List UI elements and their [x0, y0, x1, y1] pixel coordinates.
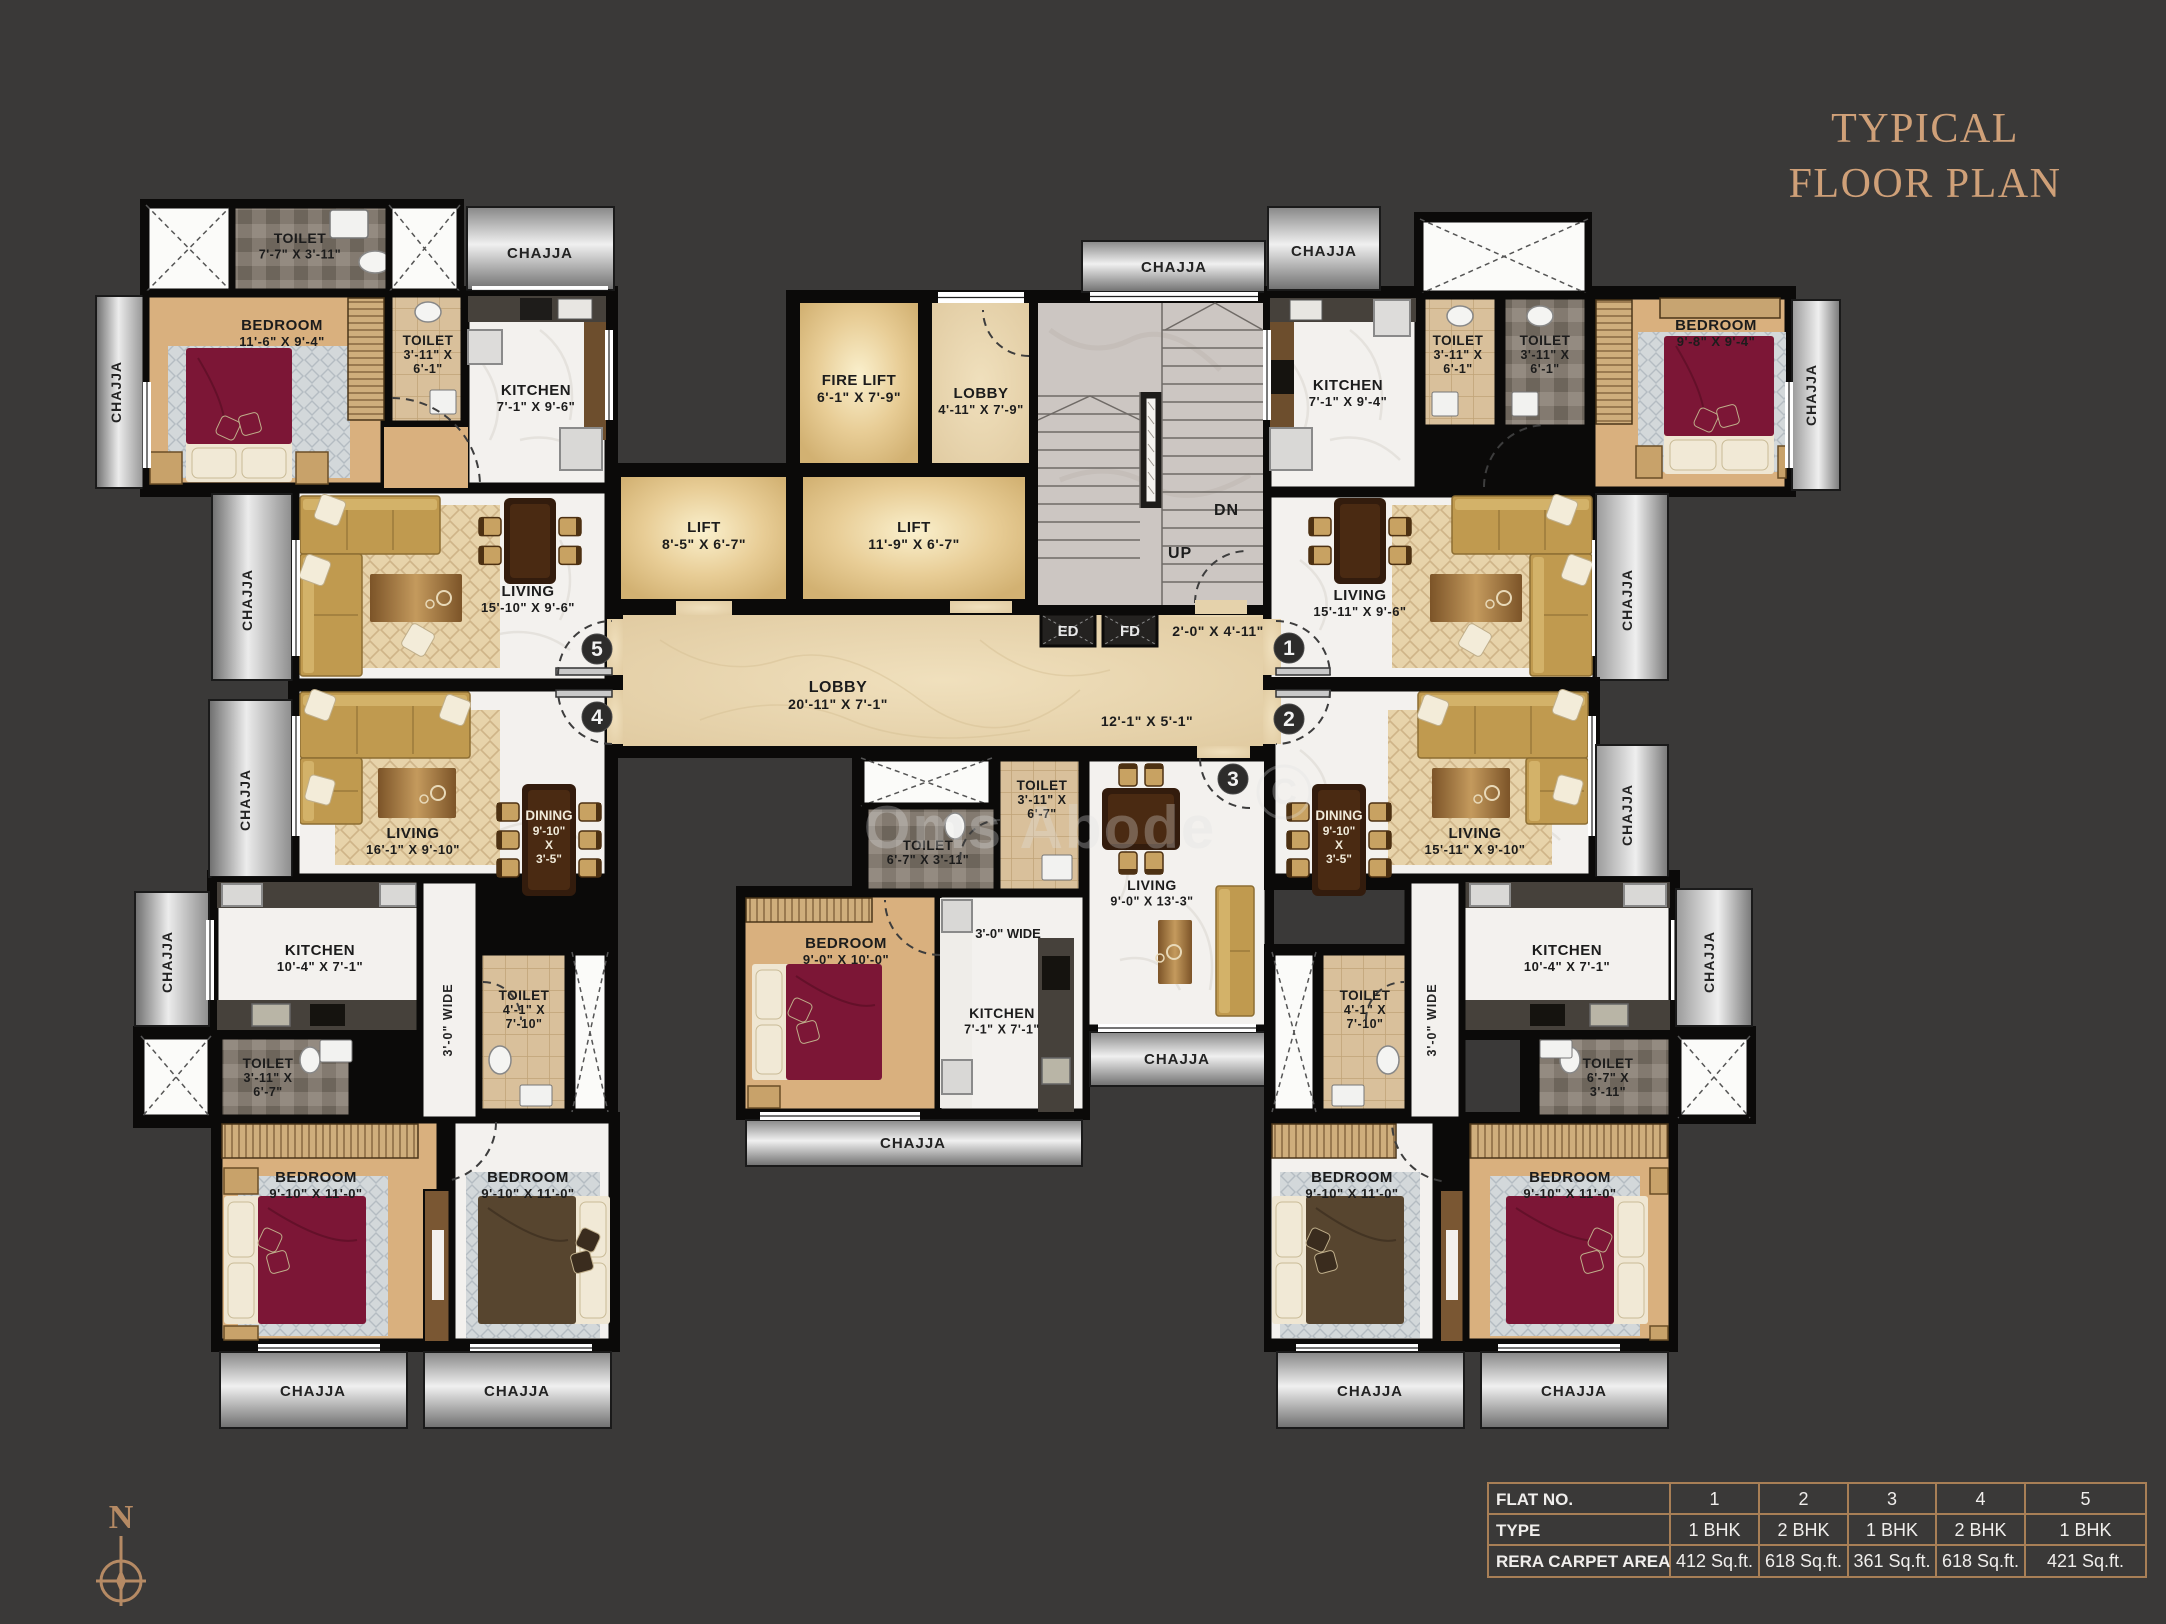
svg-text:LIVING: LIVING — [386, 825, 439, 842]
svg-text:2: 2 — [1283, 708, 1295, 731]
svg-text:4'-11" X 7'-9": 4'-11" X 7'-9" — [938, 402, 1024, 417]
svg-text:9'-0" X 13'-3": 9'-0" X 13'-3" — [1110, 895, 1193, 909]
svg-text:KITCHEN: KITCHEN — [969, 1005, 1035, 1021]
svg-text:1 BHK: 1 BHK — [2059, 1520, 2111, 1540]
svg-text:4'-1" X: 4'-1" X — [1344, 1003, 1386, 1017]
svg-text:15'-11" X 9'-6": 15'-11" X 9'-6" — [1313, 604, 1406, 619]
svg-text:X: X — [545, 838, 553, 852]
svg-text:TOILET: TOILET — [499, 988, 550, 1003]
svg-text:9'-10" X 11'-0": 9'-10" X 11'-0" — [1305, 1186, 1398, 1201]
svg-text:12'-1" X 5'-1": 12'-1" X 5'-1" — [1101, 713, 1193, 729]
svg-text:UP: UP — [1168, 545, 1192, 562]
svg-text:10'-4" X 7'-1": 10'-4" X 7'-1" — [277, 959, 363, 974]
svg-text:TOILET: TOILET — [1017, 778, 1068, 793]
svg-text:CHAJJA: CHAJJA — [237, 769, 253, 831]
svg-text:3'-0" WIDE: 3'-0" WIDE — [441, 983, 455, 1056]
svg-text:3'-11": 3'-11" — [1590, 1085, 1626, 1099]
svg-text:9'-10": 9'-10" — [533, 824, 566, 838]
svg-text:CHAJJA: CHAJJA — [1291, 243, 1357, 260]
svg-text:2'-0" X 4'-11": 2'-0" X 4'-11" — [1172, 623, 1264, 639]
svg-text:TYPICAL: TYPICAL — [1831, 106, 2019, 152]
svg-text:4'-1" X: 4'-1" X — [503, 1003, 545, 1017]
svg-text:KITCHEN: KITCHEN — [285, 942, 355, 959]
svg-text:TOILET: TOILET — [274, 230, 327, 246]
svg-text:3'-11" X: 3'-11" X — [1520, 348, 1569, 362]
svg-text:1 BHK: 1 BHK — [1866, 1520, 1918, 1540]
svg-text:FLAT NO.: FLAT NO. — [1496, 1490, 1573, 1509]
svg-text:1 BHK: 1 BHK — [1688, 1520, 1740, 1540]
svg-text:BEDROOM: BEDROOM — [1529, 1169, 1611, 1186]
svg-text:CHAJJA: CHAJJA — [1619, 784, 1635, 846]
svg-text:CHAJJA: CHAJJA — [1141, 259, 1207, 276]
svg-text:CHAJJA: CHAJJA — [1337, 1383, 1403, 1400]
svg-text:CHAJJA: CHAJJA — [1803, 364, 1819, 426]
svg-text:TYPE: TYPE — [1496, 1521, 1540, 1540]
svg-text:2 BHK: 2 BHK — [1954, 1520, 2006, 1540]
svg-text:20'-11" X 7'-1": 20'-11" X 7'-1" — [788, 696, 888, 712]
svg-text:7'-1" X 9'-6": 7'-1" X 9'-6" — [497, 399, 575, 414]
svg-text:CHAJJA: CHAJJA — [1619, 569, 1635, 631]
svg-text:618 Sq.ft.: 618 Sq.ft. — [1765, 1551, 1842, 1571]
svg-text:2 BHK: 2 BHK — [1777, 1520, 1829, 1540]
svg-text:CHAJJA: CHAJJA — [1701, 931, 1717, 993]
svg-text:LIVING: LIVING — [1448, 825, 1501, 842]
svg-text:BEDROOM: BEDROOM — [487, 1169, 569, 1186]
svg-text:LIFT: LIFT — [687, 519, 721, 536]
svg-text:412 Sq.ft.: 412 Sq.ft. — [1676, 1551, 1753, 1571]
svg-text:2: 2 — [1798, 1489, 1808, 1509]
svg-text:N: N — [109, 1499, 134, 1536]
svg-text:X: X — [1335, 838, 1343, 852]
svg-text:CHAJJA: CHAJJA — [108, 361, 124, 423]
svg-text:9'-8" X 9'-4": 9'-8" X 9'-4" — [1677, 334, 1755, 349]
svg-text:TOILET: TOILET — [1583, 1056, 1634, 1071]
svg-text:5: 5 — [591, 638, 603, 661]
svg-text:7'-7" X 3'-11": 7'-7" X 3'-11" — [259, 248, 341, 262]
svg-text:BEDROOM: BEDROOM — [275, 1169, 357, 1186]
svg-text:3: 3 — [1887, 1489, 1897, 1509]
svg-text:LOBBY: LOBBY — [954, 385, 1009, 402]
svg-text:7'-1" X 9'-4": 7'-1" X 9'-4" — [1309, 394, 1387, 409]
svg-text:7'-10": 7'-10" — [506, 1017, 543, 1031]
svg-text:BEDROOM: BEDROOM — [805, 935, 887, 952]
svg-text:TOILET: TOILET — [1340, 988, 1391, 1003]
svg-text:ED: ED — [1058, 623, 1079, 640]
svg-text:KITCHEN: KITCHEN — [1313, 377, 1383, 394]
svg-text:FLOOR PLAN: FLOOR PLAN — [1789, 161, 2062, 207]
svg-text:3'-0" WIDE: 3'-0" WIDE — [1425, 983, 1439, 1056]
svg-text:361 Sq.ft.: 361 Sq.ft. — [1853, 1551, 1930, 1571]
svg-text:C: C — [1271, 771, 1297, 812]
svg-text:CHAJJA: CHAJJA — [507, 245, 573, 262]
svg-text:FD: FD — [1120, 623, 1140, 640]
svg-text:RERA CARPET AREA: RERA CARPET AREA — [1496, 1552, 1670, 1571]
svg-text:1: 1 — [1283, 637, 1295, 660]
svg-text:16'-1" X 9'-10": 16'-1" X 9'-10" — [366, 842, 460, 857]
svg-text:5: 5 — [2080, 1489, 2090, 1509]
svg-text:KITCHEN: KITCHEN — [501, 382, 571, 399]
svg-text:10'-4" X 7'-1": 10'-4" X 7'-1" — [1524, 959, 1610, 974]
svg-text:6'-1": 6'-1" — [1443, 362, 1472, 376]
svg-text:4: 4 — [1975, 1489, 1985, 1509]
svg-text:LIFT: LIFT — [897, 519, 931, 536]
svg-text:LOBBY: LOBBY — [809, 679, 868, 696]
svg-text:FIRE LIFT: FIRE LIFT — [822, 372, 897, 389]
svg-text:9'-10" X 11'-0": 9'-10" X 11'-0" — [1523, 1186, 1616, 1201]
svg-text:DN: DN — [1214, 502, 1239, 519]
svg-text:BEDROOM: BEDROOM — [241, 317, 323, 334]
svg-text:9'-10" X 11'-0": 9'-10" X 11'-0" — [481, 1186, 574, 1201]
svg-text:9'-10": 9'-10" — [1323, 824, 1356, 838]
svg-text:11'-6" X 9'-4": 11'-6" X 9'-4" — [239, 334, 325, 349]
svg-text:3'-11" X: 3'-11" X — [403, 348, 452, 362]
svg-text:3'-5": 3'-5" — [536, 852, 562, 866]
svg-text:BEDROOM: BEDROOM — [1311, 1169, 1393, 1186]
svg-text:3'-5": 3'-5" — [1326, 852, 1352, 866]
svg-text:3'-0" WIDE: 3'-0" WIDE — [975, 926, 1041, 941]
svg-text:CHAJJA: CHAJJA — [484, 1383, 550, 1400]
svg-text:6'-1": 6'-1" — [1530, 362, 1559, 376]
svg-text:KITCHEN: KITCHEN — [1532, 942, 1602, 959]
svg-text:15'-10" X 9'-6": 15'-10" X 9'-6" — [481, 600, 575, 615]
svg-text:8'-5" X 6'-7": 8'-5" X 6'-7" — [662, 536, 746, 552]
svg-text:TOILET: TOILET — [1433, 333, 1484, 348]
svg-text:9'-0" X 10'-0": 9'-0" X 10'-0" — [803, 952, 889, 967]
svg-text:CHAJJA: CHAJJA — [1144, 1051, 1210, 1068]
svg-text:7'-10": 7'-10" — [1347, 1017, 1384, 1031]
svg-text:3: 3 — [1227, 768, 1239, 791]
svg-text:DINING: DINING — [1315, 808, 1362, 823]
svg-text:DINING: DINING — [525, 808, 572, 823]
svg-text:3'-11" X: 3'-11" X — [1433, 348, 1482, 362]
svg-text:LIVING: LIVING — [501, 583, 554, 600]
svg-text:9'-10" X 11'-0": 9'-10" X 11'-0" — [269, 1186, 362, 1201]
svg-text:LIVING: LIVING — [1127, 877, 1177, 893]
svg-text:4: 4 — [591, 706, 603, 729]
svg-text:1: 1 — [1709, 1489, 1719, 1509]
svg-text:TOILET: TOILET — [1520, 333, 1571, 348]
svg-text:Oms Abode: Oms Abode — [864, 794, 1216, 861]
svg-text:11'-9" X 6'-7": 11'-9" X 6'-7" — [868, 536, 960, 552]
svg-text:CHAJJA: CHAJJA — [239, 569, 255, 631]
svg-text:7'-1" X 7'-1": 7'-1" X 7'-1" — [964, 1023, 1040, 1037]
svg-text:6'-1": 6'-1" — [413, 362, 442, 376]
svg-text:LIVING: LIVING — [1333, 587, 1386, 604]
svg-text:BEDROOM: BEDROOM — [1675, 317, 1757, 334]
svg-text:618 Sq.ft.: 618 Sq.ft. — [1942, 1551, 2019, 1571]
svg-text:6'-7" X: 6'-7" X — [1587, 1071, 1629, 1085]
svg-text:CHAJJA: CHAJJA — [880, 1135, 946, 1152]
svg-text:421 Sq.ft.: 421 Sq.ft. — [2047, 1551, 2124, 1571]
svg-text:TOILET: TOILET — [403, 333, 454, 348]
svg-text:6'-1" X 7'-9": 6'-1" X 7'-9" — [817, 389, 901, 405]
svg-text:CHAJJA: CHAJJA — [280, 1383, 346, 1400]
svg-text:TOILET: TOILET — [243, 1056, 294, 1071]
svg-text:CHAJJA: CHAJJA — [159, 931, 175, 993]
svg-text:3'-11" X: 3'-11" X — [243, 1071, 292, 1085]
svg-text:6'-7": 6'-7" — [253, 1085, 282, 1099]
svg-text:CHAJJA: CHAJJA — [1541, 1383, 1607, 1400]
svg-text:15'-11" X 9'-10": 15'-11" X 9'-10" — [1425, 842, 1526, 857]
